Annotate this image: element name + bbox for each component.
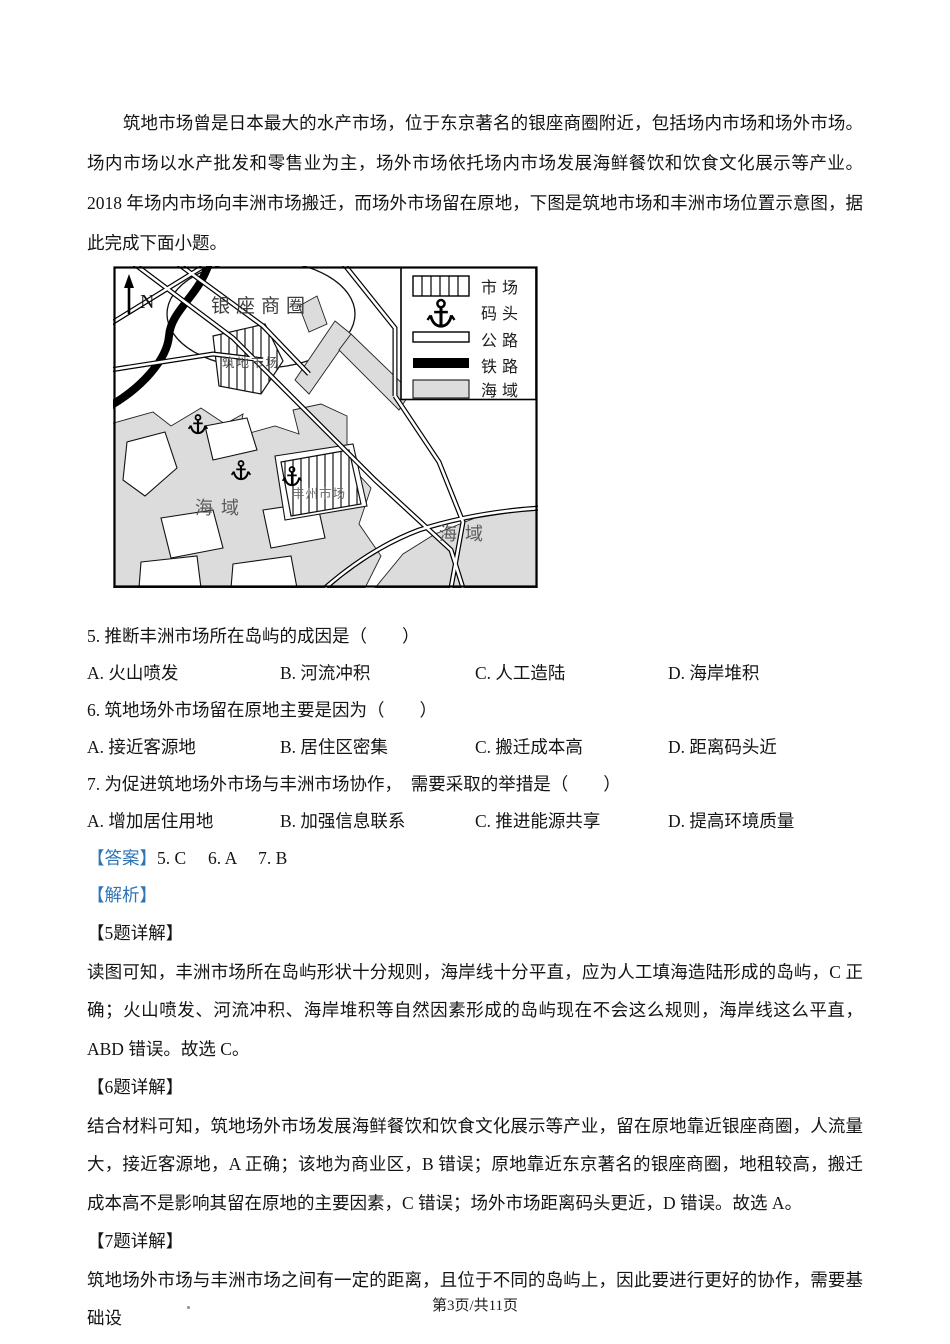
option-6b: B. 居住区密集: [280, 729, 475, 766]
map-legend: 市场 码头 公路 铁路 海域: [401, 268, 536, 401]
legend-road-swatch: [413, 332, 469, 342]
island: [139, 556, 201, 588]
option-5a: A. 火山喷发: [87, 655, 280, 692]
answer-values: 5. C 6. A 7. B: [157, 848, 287, 868]
explanation-6-title: 【6题详解】: [87, 1068, 863, 1107]
exam-page: 筑地市场曾是日本最大的水产市场，位于东京著名的银座商圈附近，包括场内市场和场外市…: [0, 0, 950, 1344]
option-6c: C. 搬迁成本高: [475, 729, 668, 766]
legend-sea-swatch: [413, 380, 469, 398]
sea-left-label: 海域: [195, 498, 247, 518]
question-7-stem: 7. 为促进筑地场外市场与丰洲市场协作， 需要采取的举措是（ ）: [87, 766, 863, 803]
option-6d: D. 距离码头近: [668, 729, 863, 766]
analysis-line: 【解析】: [87, 877, 863, 914]
option-5b: B. 河流冲积: [280, 655, 475, 692]
analysis-tag: 【解析】: [87, 885, 157, 905]
legend-label-railway: 铁路: [481, 358, 523, 376]
location-map-figure: N 银座商圈 筑地市场 海域 丰州市场 海域: [113, 266, 538, 588]
answer-line: 【答案】5. C 6. A 7. B: [87, 840, 863, 877]
explanation-6-body: 结合材料可知，筑地场外市场发展海鲜餐饮和饮食文化展示等产业，留在原地靠近银座商圈…: [87, 1107, 863, 1223]
question-5-stem: 5. 推断丰洲市场所在岛屿的成因是（ ）: [87, 618, 863, 655]
option-7b: B. 加强信息联系: [280, 803, 475, 840]
intro-paragraph: 筑地市场曾是日本最大的水产市场，位于东京著名的银座商圈附近，包括场内市场和场外市…: [87, 103, 863, 263]
ginza-label: 银座商圈: [211, 295, 311, 317]
option-7a: A. 增加居住用地: [87, 803, 280, 840]
north-label: N: [140, 291, 154, 313]
question-6-options: A. 接近客源地 B. 居住区密集 C. 搬迁成本高 D. 距离码头近: [87, 729, 863, 766]
option-5d: D. 海岸堆积: [668, 655, 863, 692]
answer-tag: 【答案】: [87, 848, 157, 868]
legend-label-road: 公路: [481, 332, 523, 350]
questions-section: 5. 推断丰洲市场所在岛屿的成因是（ ） A. 火山喷发 B. 河流冲积 C. …: [87, 618, 863, 914]
question-5-options: A. 火山喷发 B. 河流冲积 C. 人工造陆 D. 海岸堆积: [87, 655, 863, 692]
page-footer: 第3页/共11页: [0, 1294, 950, 1315]
question-6-stem: 6. 筑地场外市场留在原地主要是因为（ ）: [87, 692, 863, 729]
option-5c: C. 人工造陆: [475, 655, 668, 692]
explanations-section: 【5题详解】 读图可知，丰洲市场所在岛屿形状十分规则，海岸线十分平直，应为人工填…: [87, 914, 863, 1338]
explanation-7-title: 【7题详解】: [87, 1222, 863, 1261]
legend-railway-swatch: [413, 358, 469, 368]
tsukiji-label: 筑地市场: [222, 355, 280, 370]
option-6a: A. 接近客源地: [87, 729, 280, 766]
explanation-5-title: 【5题详解】: [87, 914, 863, 953]
question-7-options: A. 增加居住用地 B. 加强信息联系 C. 推进能源共享 D. 提高环境质量: [87, 803, 863, 840]
explanation-5-body: 读图可知，丰洲市场所在岛屿形状十分规则，海岸线十分平直，应为人工填海造陆形成的岛…: [87, 953, 863, 1069]
option-7c: C. 推进能源共享: [475, 803, 668, 840]
legend-label-market: 市场: [481, 279, 523, 297]
page-content: 筑地市场曾是日本最大的水产市场，位于东京著名的银座商圈附近，包括场内市场和场外市…: [87, 0, 863, 1338]
legend-label-sea: 海域: [481, 382, 523, 400]
sea-right-label: 海域: [439, 524, 491, 544]
legend-label-dock: 码头: [481, 305, 523, 323]
toyosu-label: 丰州市场: [292, 486, 346, 501]
option-7d: D. 提高环境质量: [668, 803, 863, 840]
